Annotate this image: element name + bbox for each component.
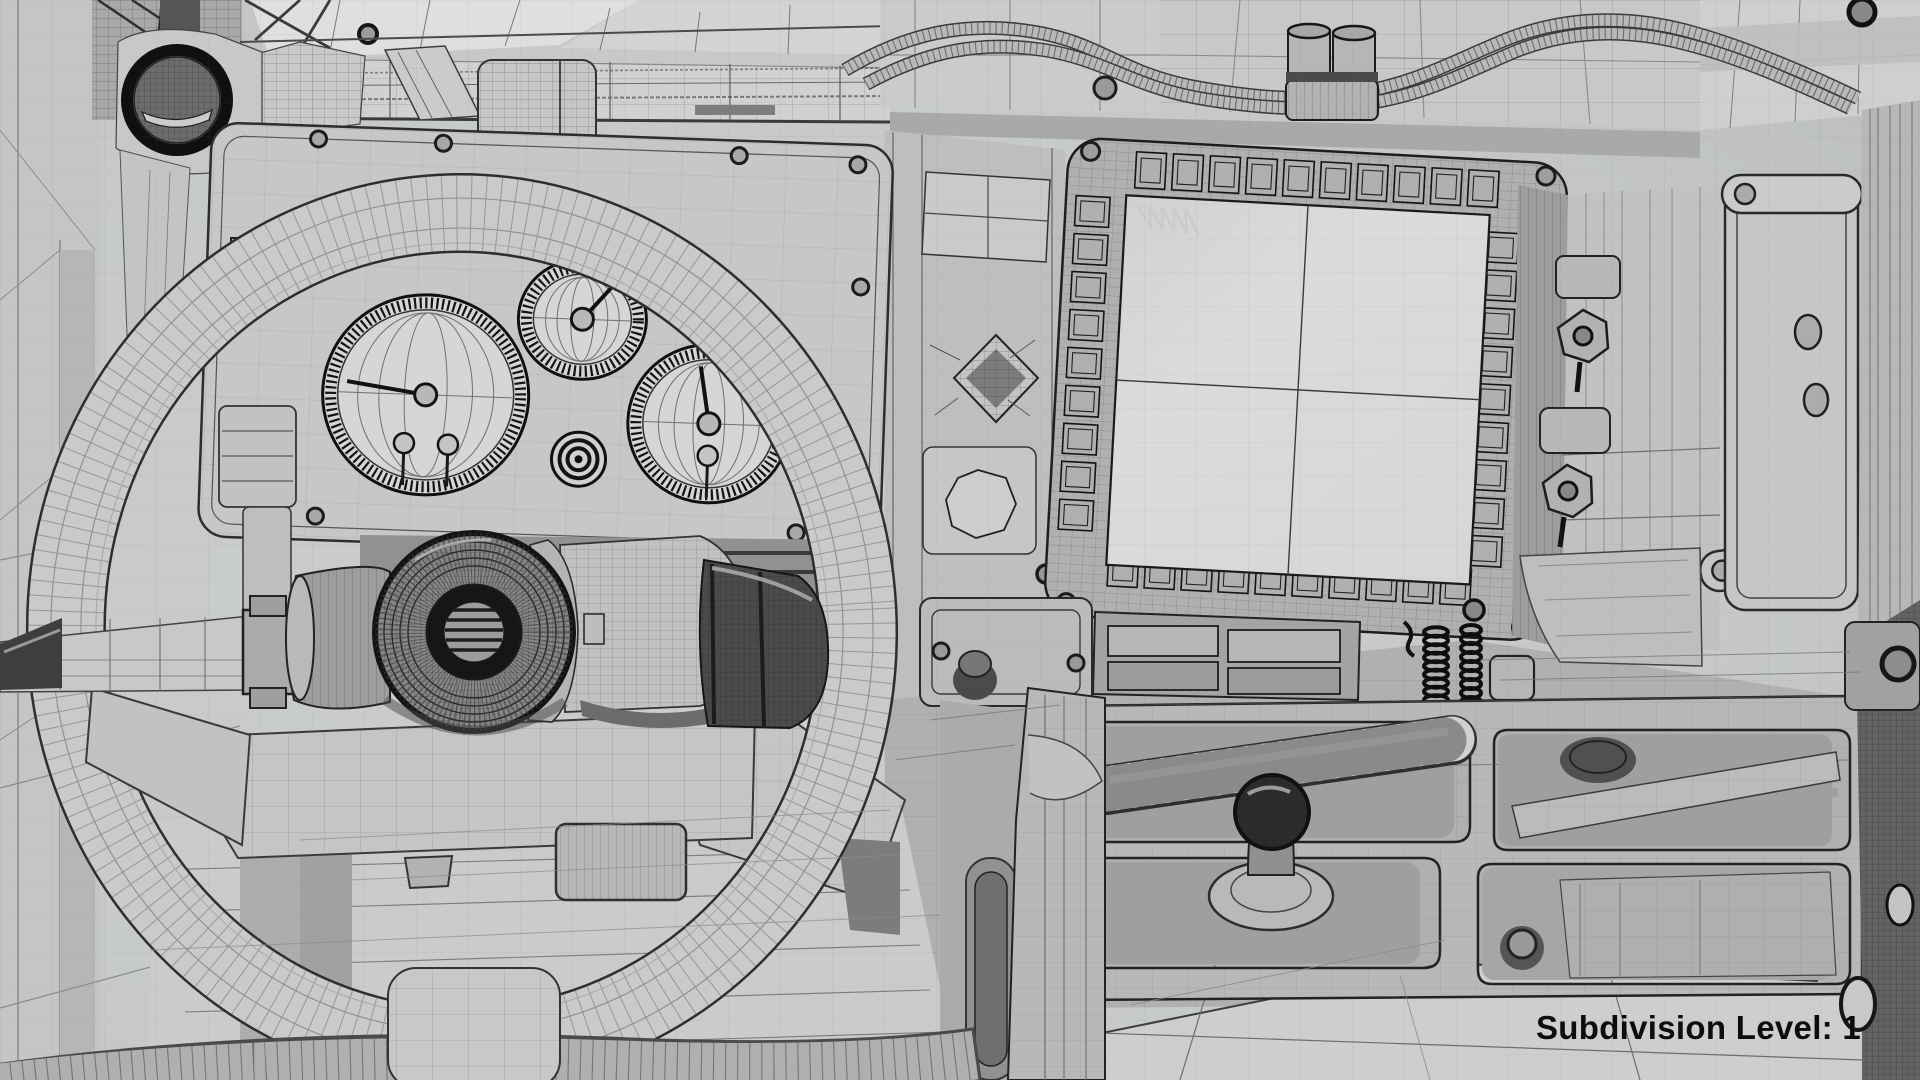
svg-text:Subdivision Level: 1: Subdivision Level: 1 bbox=[1536, 1009, 1861, 1046]
